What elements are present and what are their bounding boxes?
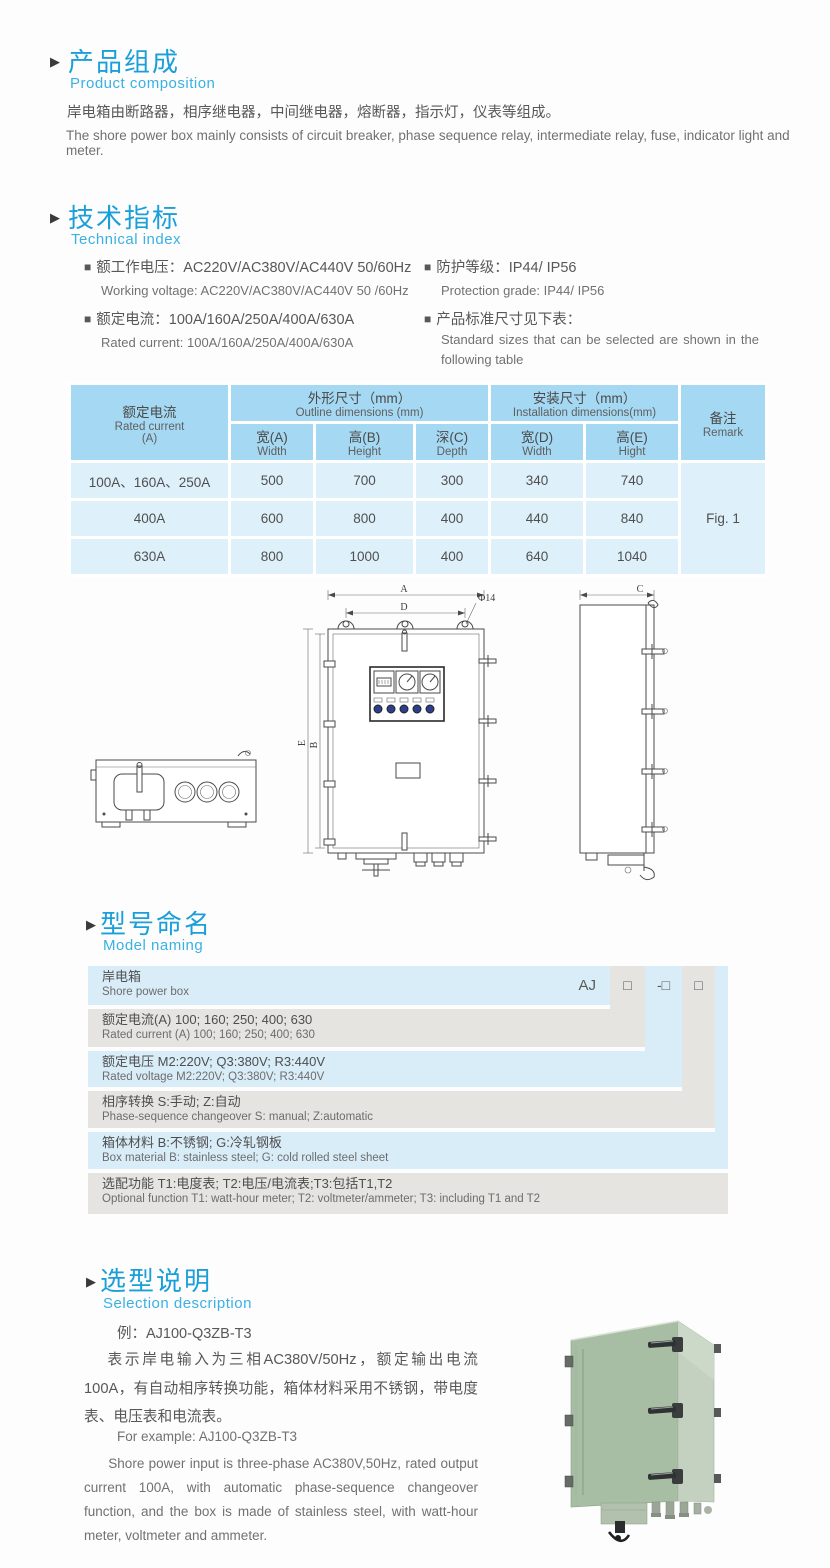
naming-row-en: Shore power box — [102, 985, 610, 999]
section-arrow-icon: ▶ — [50, 210, 60, 226]
cell-value: 740 — [585, 462, 680, 500]
header-text: Width — [491, 446, 583, 458]
header-text: Hight — [586, 446, 678, 458]
naming-row-cn: 岸电箱 — [102, 969, 610, 985]
technical-title-cn: 技术指标 — [68, 198, 180, 235]
cell-remark-fig: Fig. 1 — [680, 462, 767, 576]
header-depth-c: 深(C)Depth — [415, 423, 490, 462]
spec-text: 防护等级：IP44/ IP56 — [436, 260, 576, 276]
front-view-drawing: A D Φ14 E B — [298, 583, 508, 883]
selection-body-en: Shore power input is three-phase AC380V,… — [84, 1452, 478, 1548]
naming-row-cn: 箱体材料 B:不锈钢; G:冷轧钢板 — [102, 1135, 727, 1151]
cell-value: 400 — [415, 500, 490, 538]
naming-row-en: Box material B: stainless steel; G: cold… — [102, 1151, 727, 1165]
header-remark: 备注 Remark — [680, 384, 767, 462]
naming-row-en: Rated voltage M2:220V; Q3:380V; R3:440V — [102, 1070, 682, 1084]
cell-value: 1000 — [315, 538, 415, 576]
table-header-row: 额定电流 Rated current (A) 外形尺寸（mm） Outline … — [70, 384, 767, 423]
spec-text: 产品标准尺寸见下表： — [436, 312, 581, 328]
cell-value: 400 — [415, 538, 490, 576]
table-row: 400A 600 800 400 440 840 — [70, 500, 767, 538]
header-text: 安装尺寸（mm） — [491, 387, 678, 407]
cable-gland-hardware — [651, 1502, 712, 1519]
header-text: Remark — [681, 427, 765, 439]
spec-protection-cn: ■防护等级：IP44/ IP56 — [424, 256, 576, 277]
cell-value: 300 — [415, 462, 490, 500]
dim-label-phi14: Φ14 — [478, 593, 495, 604]
dim-label-c: C — [637, 584, 644, 595]
header-text: (A) — [71, 433, 228, 445]
dim-label-e: E — [298, 740, 308, 746]
spec-rated-current-en: Rated current: 100A/160A/250A/400A/630A — [101, 335, 353, 350]
naming-row-phase-sequence: 相序转换 S:手动; Z:自动 Phase-sequence changeove… — [88, 1091, 715, 1128]
dim-label-a: A — [400, 584, 408, 595]
dim-label-d: D — [400, 602, 407, 613]
cell-rated-current: 630A — [70, 538, 230, 576]
header-text: 深(C) — [416, 426, 488, 446]
cell-value: 340 — [490, 462, 585, 500]
cell-value: 640 — [490, 538, 585, 576]
naming-title-en: Model naming — [103, 937, 203, 954]
cell-value: 800 — [230, 538, 315, 576]
cell-rated-current: 100A、160A、250A — [70, 462, 230, 500]
bullet-square-icon: ■ — [424, 312, 431, 326]
model-naming-table: 岸电箱 Shore power box AJ □ -□ □ 额定电流(A) 10… — [88, 966, 745, 1216]
cell-value: 700 — [315, 462, 415, 500]
model-placeholder-box: □ — [682, 977, 715, 993]
cell-value: 800 — [315, 500, 415, 538]
header-text: 宽(D) — [491, 426, 583, 446]
model-prefix: AJ — [578, 977, 596, 994]
header-text: 宽(A) — [231, 426, 313, 446]
composition-title-cn: 产品组成 — [68, 42, 180, 79]
table-row: 100A、160A、250A 500 700 300 340 740 Fig. … — [70, 462, 767, 500]
bullet-square-icon: ■ — [424, 260, 431, 274]
naming-row-rated-voltage: 额定电压 M2:220V; Q3:380V; R3:440V Rated vol… — [88, 1051, 682, 1087]
meter-panel — [370, 667, 444, 721]
spec-text: 额定电流：100A/160A/250A/400A/630A — [96, 312, 354, 328]
selection-example-en: For example: AJ100-Q3ZB-T3 — [117, 1429, 297, 1444]
header-text: Outline dimensions (mm) — [231, 407, 488, 419]
catalog-page: ▶ 产品组成 Product composition 岸电箱由断路器，相序继电器… — [0, 0, 830, 1568]
naming-row-cn: 相序转换 S:手动; Z:自动 — [102, 1094, 715, 1110]
composition-body-en: The shore power box mainly consists of c… — [66, 128, 830, 158]
header-rated-current: 额定电流 Rated current (A) — [70, 384, 230, 462]
header-text: 高(E) — [586, 426, 678, 446]
spec-text: 额工作电压：AC220V/AC380V/AC440V 50/60Hz — [96, 260, 411, 276]
header-width-d: 宽(D)Width — [490, 423, 585, 462]
header-height-b: 高(B)Height — [315, 423, 415, 462]
side-view-drawing: C — [552, 583, 682, 883]
spec-rated-current-cn: ■额定电流：100A/160A/250A/400A/630A — [84, 308, 354, 329]
product-photo-shore-power-box — [545, 1288, 830, 1563]
cell-value: 840 — [585, 500, 680, 538]
naming-row-rated-current: 额定电流(A) 100; 160; 250; 400; 630 Rated cu… — [88, 1009, 645, 1047]
cell-value: 440 — [490, 500, 585, 538]
header-text: 高(B) — [316, 426, 413, 446]
composition-title-en: Product composition — [70, 75, 215, 92]
bullet-square-icon: ■ — [84, 312, 91, 326]
composition-body-cn: 岸电箱由断路器，相序继电器，中间继电器，熔断器，指示灯，仪表等组成。 — [67, 101, 560, 122]
naming-row-en: Phase-sequence changeover S: manual; Z:a… — [102, 1110, 715, 1124]
naming-row-shore-power-box: 岸电箱 Shore power box AJ — [88, 966, 610, 1005]
cable-glands — [414, 853, 463, 866]
selection-title-cn: 选型说明 — [100, 1261, 212, 1298]
bullet-square-icon: ■ — [84, 260, 91, 274]
model-placeholder-box: □ — [610, 977, 645, 993]
section-arrow-icon: ▶ — [50, 54, 60, 70]
header-width-a: 宽(A)Width — [230, 423, 315, 462]
header-text: 备注 — [681, 407, 765, 427]
naming-title-cn: 型号命名 — [100, 904, 212, 941]
header-outline-dimensions: 外形尺寸（mm） Outline dimensions (mm) — [230, 384, 490, 423]
selection-example-cn: 例：AJ100-Q3ZB-T3 — [117, 1322, 252, 1343]
naming-row-cn: 额定电压 M2:220V; Q3:380V; R3:440V — [102, 1054, 682, 1070]
naming-row-box-material: 箱体材料 B:不锈钢; G:冷轧钢板 Box material B: stain… — [88, 1132, 727, 1169]
cell-value: 500 — [230, 462, 315, 500]
bottom-view-drawing — [90, 740, 265, 840]
spec-working-voltage-en: Working voltage: AC220V/AC380V/AC440V 50… — [101, 283, 409, 298]
header-installation-dimensions: 安装尺寸（mm） Installation dimensions(mm) — [490, 384, 680, 423]
naming-row-en: Rated current (A) 100; 160; 250; 400; 63… — [102, 1028, 645, 1042]
header-text: Rated current — [71, 421, 228, 433]
header-text: 额定电流 — [71, 401, 228, 421]
spec-standard-size-cn: ■产品标准尺寸见下表： — [424, 308, 581, 329]
naming-row-en: Optional function T1: watt-hour meter; T… — [102, 1192, 728, 1206]
dimensions-table: 额定电流 Rated current (A) 外形尺寸（mm） Outline … — [68, 382, 768, 577]
spec-working-voltage-cn: ■额工作电压：AC220V/AC380V/AC440V 50/60Hz — [84, 256, 411, 277]
naming-row-cn: 选配功能 T1:电度表; T2:电压/电流表;T3:包括T1,T2 — [102, 1176, 728, 1192]
header-text: Depth — [416, 446, 488, 458]
naming-row-optional-function: 选配功能 T1:电度表; T2:电压/电流表;T3:包括T1,T2 Option… — [88, 1173, 728, 1214]
cell-value: 1040 — [585, 538, 680, 576]
header-text: Installation dimensions(mm) — [491, 407, 678, 419]
header-text: Width — [231, 446, 313, 458]
header-text: 外形尺寸（mm） — [231, 387, 488, 407]
table-row: 630A 800 1000 400 640 1040 — [70, 538, 767, 576]
header-height-e: 高(E)Hight — [585, 423, 680, 462]
model-placeholder-box: -□ — [645, 977, 682, 993]
header-text: Height — [316, 446, 413, 458]
spec-standard-size-en: Standard sizes that can be selected are … — [441, 330, 759, 370]
cell-value: 600 — [230, 500, 315, 538]
section-arrow-icon: ▶ — [86, 917, 96, 933]
selection-title-en: Selection description — [103, 1295, 252, 1312]
section-arrow-icon: ▶ — [86, 1274, 96, 1290]
technical-title-en: Technical index — [71, 231, 181, 248]
cell-rated-current: 400A — [70, 500, 230, 538]
spec-protection-en: Protection grade: IP44/ IP56 — [441, 283, 604, 298]
naming-row-cn: 额定电流(A) 100; 160; 250; 400; 630 — [102, 1012, 645, 1028]
dim-label-b: B — [309, 741, 320, 748]
selection-body-cn: 表示岸电输入为三相AC380V/50Hz，额定输出电流100A，有自动相序转换功… — [84, 1346, 478, 1432]
